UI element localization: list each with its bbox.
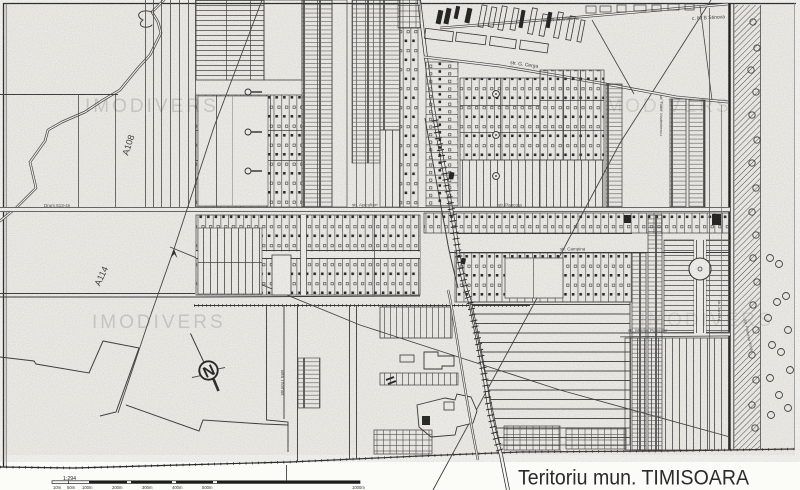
- svg-text:50m: 50m: [67, 485, 76, 490]
- svg-text:10m: 10m: [53, 485, 62, 490]
- svg-text:300m: 300m: [142, 485, 153, 490]
- svg-text:1:294: 1:294: [63, 476, 76, 482]
- svg-text:1000m: 1000m: [352, 485, 365, 490]
- svg-text:200m: 200m: [112, 485, 123, 490]
- svg-text:Teritoriu mun. TIMISOARA: Teritoriu mun. TIMISOARA: [518, 466, 750, 490]
- svg-text:100m: 100m: [82, 485, 93, 490]
- svg-text:500m: 500m: [202, 485, 213, 490]
- svg-text:400m: 400m: [172, 485, 183, 490]
